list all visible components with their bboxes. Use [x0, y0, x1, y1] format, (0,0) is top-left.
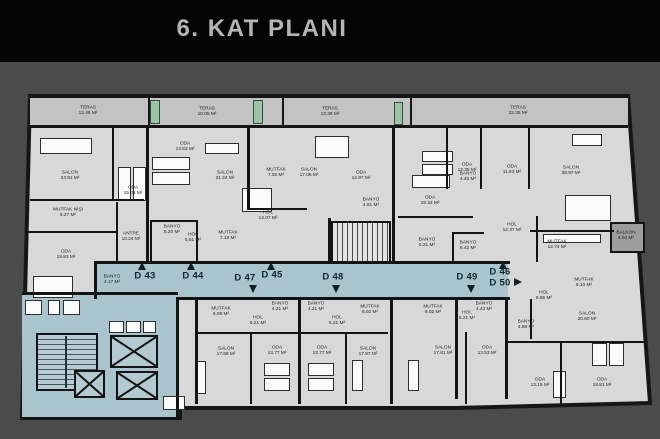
room-label: SALON24.91 M² [61, 170, 80, 181]
wall [176, 297, 179, 417]
furniture [572, 134, 602, 146]
room-label: HOL12.37 M² [503, 222, 522, 233]
room-area: 21.24 M² [216, 176, 235, 182]
wall [530, 230, 614, 232]
room-label: BANYO4.17 M² [104, 274, 121, 285]
wall [28, 231, 116, 233]
page-title: 6. KAT PLANI [0, 15, 524, 43]
furniture [143, 321, 156, 333]
room-label: HOL5.21 M² [329, 315, 345, 326]
room-area: 17.69 M² [217, 352, 236, 358]
room-area: 5.21 M² [329, 321, 345, 327]
room-area: 9.27 M² [53, 213, 83, 219]
furniture [48, 300, 60, 315]
terrace-divider-wall [410, 98, 412, 125]
room-area: 5.21 M² [250, 321, 266, 327]
terrace-divider-wall [282, 98, 284, 125]
wall [390, 299, 393, 404]
room-area: 17.81 M² [434, 351, 453, 357]
room-area: 4.21 M² [272, 307, 289, 313]
room-label: BALKON4.04 M² [616, 230, 635, 241]
room-area: 7.05 M² [266, 173, 285, 179]
furniture [63, 300, 80, 315]
room-area: 24.91 M² [61, 176, 80, 182]
terrace-divider-wall [148, 98, 150, 125]
furniture [352, 360, 363, 391]
room-label: MUTFAK7.19 M² [218, 230, 237, 241]
room-label: HOL5.21 M² [250, 315, 266, 326]
room-area: 8.02 M² [360, 310, 379, 316]
wall [392, 127, 395, 263]
floor-plan-page: 6. KAT PLANI TERAS12.48 M²TERAS10.05 M²T… [0, 0, 660, 439]
room-area: 12.74 M² [547, 245, 566, 251]
room-label: MUTFAK NİŞİ9.27 M² [53, 207, 83, 218]
wall [507, 341, 647, 343]
room-area: 5.61 M² [185, 238, 201, 244]
room-area: 4.61 M² [363, 203, 380, 209]
wall [300, 332, 388, 334]
wall [196, 332, 298, 334]
room-area: 12.37 M² [503, 228, 522, 234]
elevator [116, 371, 158, 400]
unit-arrow-icon [249, 285, 257, 293]
room-area: 13.53 M² [176, 147, 195, 153]
wall [398, 216, 473, 218]
wall [112, 127, 114, 201]
room-area: 9.86 M² [536, 296, 552, 302]
wall [560, 343, 562, 405]
furniture [565, 195, 611, 221]
room-label: BANYO5.21 M² [419, 237, 436, 248]
terrace-door [253, 100, 263, 124]
room-label: SALON17.69 M² [217, 346, 236, 357]
wall [146, 127, 149, 263]
unit-label: D 47 [234, 273, 255, 284]
furniture [315, 136, 349, 158]
room-label: MUTFAK12.74 M² [547, 239, 566, 250]
wall [536, 216, 538, 262]
room-area: 17.05 M² [300, 173, 319, 179]
room-label: ODA13.77 M² [268, 345, 287, 356]
unit-label: D 50 [489, 278, 510, 289]
wall [298, 299, 301, 404]
room-label: ANTRE10.24 M² [122, 231, 141, 242]
wall [247, 127, 250, 209]
room-label: BANYO6.42 M² [460, 240, 477, 251]
room-label: HOL9.86 M² [536, 290, 552, 301]
room-area: 13.15 M² [531, 383, 550, 389]
furniture [33, 276, 73, 298]
wall [465, 332, 467, 404]
unit-label: D 45 [261, 270, 282, 281]
room-label: SALON21.24 M² [216, 170, 235, 181]
furniture [264, 363, 290, 376]
room-label: ODA11.63 M² [503, 164, 521, 175]
room-label: ODA13.53 M² [176, 141, 195, 152]
room-area: 19.83 M² [57, 255, 76, 261]
unit-arrow-icon [514, 278, 522, 286]
wall [22, 292, 178, 295]
wall [176, 297, 510, 300]
furniture [412, 175, 450, 188]
room-area: 18.81 M² [593, 383, 612, 389]
room-area: 4.21 M² [308, 307, 325, 313]
room-label: ODA13.77 M² [313, 345, 332, 356]
furniture [205, 143, 239, 154]
terrace-door [150, 100, 160, 124]
room-area: 14.97 M² [352, 176, 371, 182]
room-area: 14.07 M² [259, 216, 278, 222]
room-label: SALON17.05 M² [300, 167, 319, 178]
furniture [25, 300, 42, 315]
room-label: SALON17.97 M² [359, 346, 378, 357]
unit-arrow-icon [187, 262, 195, 270]
furniture [422, 164, 453, 175]
furniture [592, 343, 607, 366]
unit-arrow-icon [499, 261, 507, 269]
room-area: 6.09 M² [211, 312, 230, 318]
wall [30, 199, 144, 201]
furniture [308, 378, 334, 391]
room-label: MUTFAK6.10 M² [574, 277, 593, 288]
wall [505, 299, 508, 399]
unit-label: D 49 [456, 272, 477, 283]
furniture [308, 363, 334, 376]
terrace-label: TERAS13.39 M² [321, 106, 340, 117]
wall [195, 299, 198, 404]
room-label: SALON20.60 M² [578, 311, 597, 322]
room-label: MUTFAK8.02 M² [423, 304, 442, 315]
room-label: SALON38.97 M² [562, 165, 581, 176]
elevator [74, 370, 105, 398]
staircase-rail [65, 336, 67, 388]
room-label: MUTFAK7.05 M² [266, 167, 285, 178]
room-label: ODA19.83 M² [57, 249, 76, 260]
room-area: 5.20 M² [164, 230, 181, 236]
room-area: 4.46 M² [460, 177, 477, 183]
unit-arrow-icon [467, 285, 475, 293]
room-area: 22.35 M² [509, 111, 528, 117]
wall [94, 261, 510, 264]
elevator [110, 335, 158, 368]
room-area: 4.17 M² [104, 280, 121, 286]
room-area: 7.19 M² [218, 236, 237, 242]
wall [116, 202, 118, 262]
wall [345, 332, 347, 404]
furniture [152, 157, 190, 170]
wall [328, 218, 331, 263]
room-area: 5.21 M² [459, 316, 475, 322]
room-area: 13.77 M² [268, 351, 287, 357]
furniture [109, 321, 124, 333]
room-label: BANYO4.88 M² [518, 319, 535, 330]
room-label: BANYO4.46 M² [460, 171, 477, 182]
room-label: ODA18.81 M² [593, 377, 612, 388]
room-area: 13.77 M² [313, 351, 332, 357]
room-area: 15.03 M² [124, 191, 143, 197]
room-label: BANYO4.43 M² [476, 301, 493, 312]
furniture [152, 172, 190, 185]
wall [452, 232, 484, 234]
room-label: BANYO4.21 M² [272, 301, 289, 312]
wall [528, 127, 530, 189]
terrace-label: TERAS22.35 M² [509, 105, 528, 116]
furniture [163, 396, 185, 410]
unit-label: D 43 [134, 271, 155, 282]
wall [150, 220, 196, 222]
terrace-label: TERAS12.48 M² [79, 105, 98, 116]
room-area: 11.63 M² [503, 170, 521, 176]
wall [150, 220, 152, 262]
unit-arrow-icon [332, 285, 340, 293]
room-label: ODA13.53 M² [478, 345, 497, 356]
wall [30, 125, 628, 128]
room-area: 8.02 M² [423, 310, 442, 316]
room-label: HOL5.61 M² [185, 232, 201, 243]
room-area: 5.21 M² [419, 243, 436, 249]
room-area: 4.43 M² [476, 307, 493, 313]
room-label: HOL14.07 M² [259, 210, 278, 221]
wall [455, 299, 458, 399]
furniture [126, 321, 141, 333]
room-label: ODA14.97 M² [352, 170, 371, 181]
room-area: 10.05 M² [198, 112, 217, 118]
room-area: 13.39 M² [321, 112, 340, 118]
room-label: ODA19.32 M² [421, 195, 440, 206]
terrace-door [394, 102, 403, 125]
room-label: BANYO4.21 M² [308, 301, 325, 312]
unit-label: D 48 [322, 272, 343, 283]
unit-arrow-icon [138, 262, 146, 270]
wall [250, 332, 252, 404]
room-label: ODA13.15 M² [531, 377, 550, 388]
room-area: 19.32 M² [421, 201, 440, 207]
fire-staircase [331, 221, 391, 263]
room-area: 12.48 M² [79, 111, 98, 117]
room-area: 10.24 M² [122, 237, 141, 243]
wall [446, 127, 448, 189]
terrace-label: TERAS10.05 M² [198, 106, 217, 117]
room-label: HOL5.21 M² [459, 310, 475, 321]
furniture [264, 378, 290, 391]
title-bar: 6. KAT PLANI [0, 0, 660, 62]
room-area: 4.04 M² [616, 236, 635, 242]
room-area: 4.88 M² [518, 325, 535, 331]
room-label: MUTFAK6.09 M² [211, 306, 230, 317]
room-label: SALON17.81 M² [434, 345, 453, 356]
furniture [40, 138, 92, 154]
room-area: 20.60 M² [578, 317, 597, 323]
room-area: 6.10 M² [574, 283, 593, 289]
wall [452, 232, 454, 262]
wall [480, 127, 482, 189]
room-area: 13.53 M² [478, 351, 497, 357]
room-area: 17.97 M² [359, 352, 378, 358]
room-label: MUTFAK8.02 M² [360, 304, 379, 315]
furniture [422, 151, 453, 162]
room-label: ODA15.03 M² [124, 185, 143, 196]
room-area: 6.42 M² [460, 246, 477, 252]
furniture [408, 360, 419, 391]
room-label: BANYO5.20 M² [164, 224, 181, 235]
room-area: 38.97 M² [562, 171, 581, 177]
furniture [609, 343, 624, 366]
unit-arrow-icon [267, 262, 275, 270]
room-label: BANYO4.61 M² [363, 197, 380, 208]
unit-label: D 44 [182, 271, 203, 282]
